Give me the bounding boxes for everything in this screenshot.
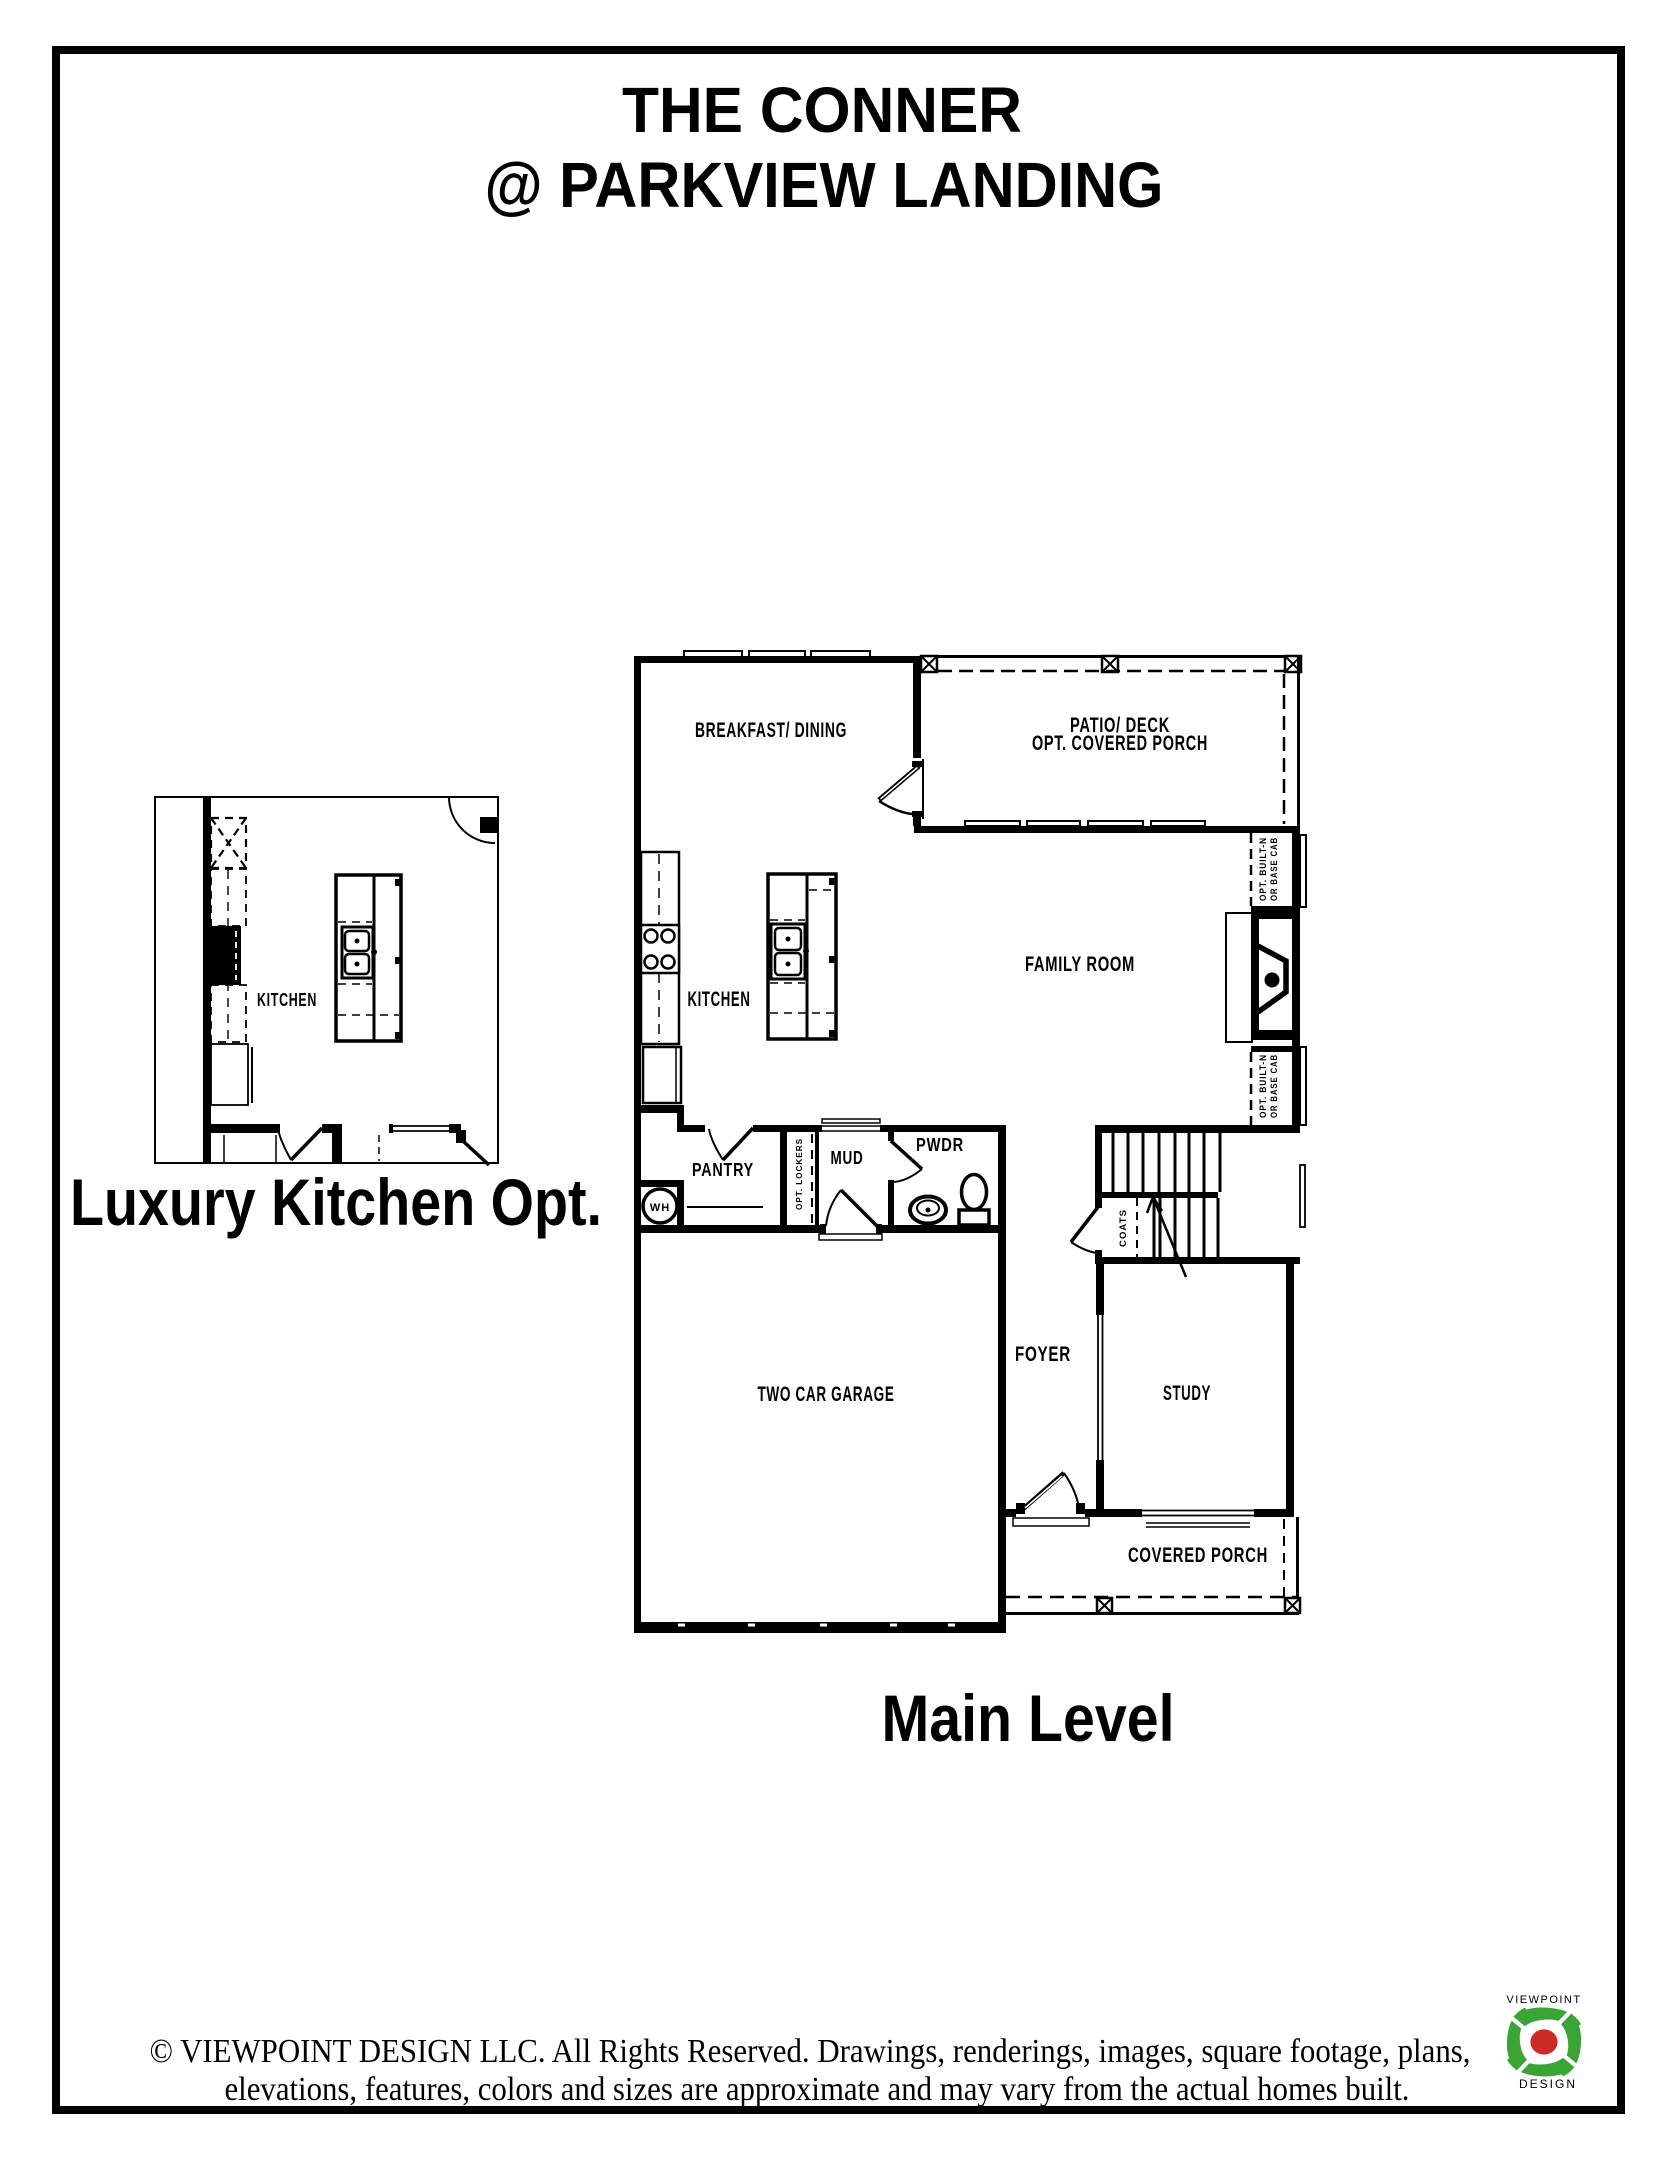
svg-text:OPT. COVERED PORCH: OPT. COVERED PORCH	[1032, 731, 1208, 755]
svg-text:THE CONNER: THE CONNER	[622, 74, 1022, 146]
svg-text:TWO CAR GARAGE: TWO CAR GARAGE	[758, 1382, 895, 1406]
svg-text:STUDY: STUDY	[1163, 1381, 1211, 1405]
svg-text:OPT. LOCKERS: OPT. LOCKERS	[794, 1138, 804, 1210]
svg-text:FOYER: FOYER	[1015, 1342, 1071, 1366]
svg-text:COVERED PORCH: COVERED PORCH	[1128, 1543, 1268, 1567]
svg-text:OR BASE CAB: OR BASE CAB	[1269, 837, 1279, 901]
svg-text:elevations, features, colors a: elevations, features, colors and sizes a…	[225, 2071, 1410, 2108]
svg-text:BREAKFAST/ DINING: BREAKFAST/ DINING	[695, 718, 847, 742]
svg-text:KITCHEN: KITCHEN	[688, 987, 751, 1011]
svg-text:MUD: MUD	[831, 1148, 864, 1168]
svg-text:VIEWPOINT: VIEWPOINT	[1506, 1994, 1581, 2006]
svg-text:PWDR: PWDR	[916, 1135, 964, 1155]
svg-text:© VIEWPOINT DESIGN LLC. All Ri: © VIEWPOINT DESIGN LLC. All Rights Reser…	[150, 2033, 1471, 2070]
svg-text:Main Level: Main Level	[882, 1681, 1175, 1755]
svg-text:PANTRY: PANTRY	[692, 1160, 754, 1180]
svg-text:KITCHEN: KITCHEN	[257, 990, 317, 1010]
svg-text:@ PARKVIEW LANDING: @ PARKVIEW LANDING	[485, 149, 1164, 221]
svg-text:WH: WH	[650, 1202, 670, 1214]
svg-text:OPT. BUILT-N: OPT. BUILT-N	[1258, 1054, 1268, 1118]
svg-text:FAMILY ROOM: FAMILY ROOM	[1025, 952, 1135, 976]
svg-text:OPT. BUILT-N: OPT. BUILT-N	[1258, 837, 1268, 901]
svg-text:Luxury Kitchen Opt.: Luxury Kitchen Opt.	[70, 1165, 602, 1239]
svg-text:OR BASE CAB: OR BASE CAB	[1269, 1054, 1279, 1118]
svg-text:COATS: COATS	[1118, 1209, 1128, 1247]
svg-text:DESIGN: DESIGN	[1519, 2077, 1577, 2091]
